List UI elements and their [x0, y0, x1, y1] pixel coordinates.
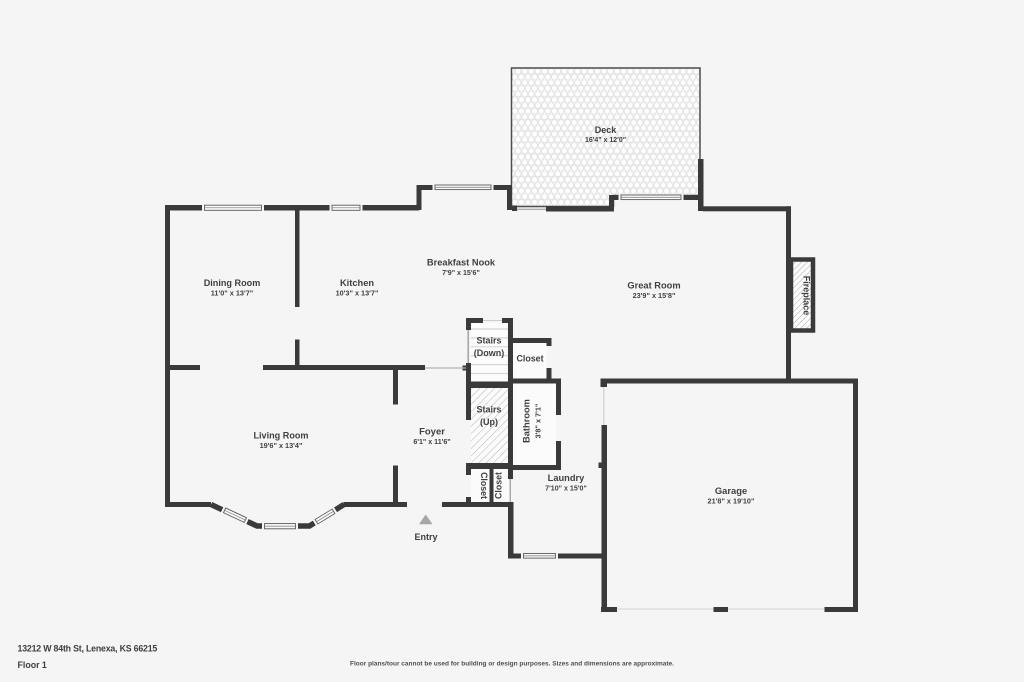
svg-text:13212 W 84th St, Lenexa, KS 66: 13212 W 84th St, Lenexa, KS 66215: [18, 644, 158, 654]
svg-text:10'3" x 13'7": 10'3" x 13'7": [336, 289, 379, 298]
svg-text:Living Room: Living Room: [253, 431, 308, 441]
svg-text:6'1" x 11'6": 6'1" x 11'6": [413, 438, 450, 446]
svg-text:Closet: Closet: [494, 472, 504, 499]
svg-text:Dining Room: Dining Room: [204, 278, 261, 288]
svg-text:Closet: Closet: [516, 354, 543, 364]
svg-text:Entry: Entry: [414, 532, 437, 542]
svg-text:19'6" x 13'4": 19'6" x 13'4": [260, 441, 303, 450]
svg-text:Bathroom: Bathroom: [522, 399, 532, 443]
svg-text:7'9" x 15'6": 7'9" x 15'6": [442, 269, 480, 277]
svg-text:Foyer: Foyer: [419, 427, 445, 438]
svg-text:Kitchen: Kitchen: [340, 278, 374, 288]
svg-text:Stairs: Stairs: [476, 405, 501, 415]
svg-text:Floor 1: Floor 1: [18, 660, 47, 670]
svg-text:3'8" x 7'1": 3'8" x 7'1": [534, 404, 543, 439]
svg-text:Laundry: Laundry: [548, 473, 586, 483]
svg-text:Floor plans/tour cannot be use: Floor plans/tour cannot be used for buil…: [350, 661, 674, 668]
svg-text:21'8" x 19'10": 21'8" x 19'10": [708, 497, 755, 506]
svg-text:Great Room: Great Room: [627, 281, 680, 291]
svg-text:23'9" x 15'8": 23'9" x 15'8": [633, 291, 676, 300]
svg-text:(Down): (Down): [474, 348, 505, 358]
svg-text:Breakfast Nook: Breakfast Nook: [427, 258, 496, 268]
svg-text:(Up): (Up): [480, 417, 498, 427]
svg-text:11'0" x 13'7": 11'0" x 13'7": [211, 289, 253, 298]
svg-text:Deck: Deck: [595, 125, 618, 135]
svg-text:Closet: Closet: [479, 472, 489, 499]
svg-text:7'10" x 15'0": 7'10" x 15'0": [545, 485, 587, 493]
svg-text:16'4" x 12'0": 16'4" x 12'0": [585, 137, 626, 144]
svg-text:Garage: Garage: [715, 485, 747, 496]
svg-text:Stairs: Stairs: [476, 336, 501, 346]
svg-text:Fireplace: Fireplace: [802, 276, 812, 316]
